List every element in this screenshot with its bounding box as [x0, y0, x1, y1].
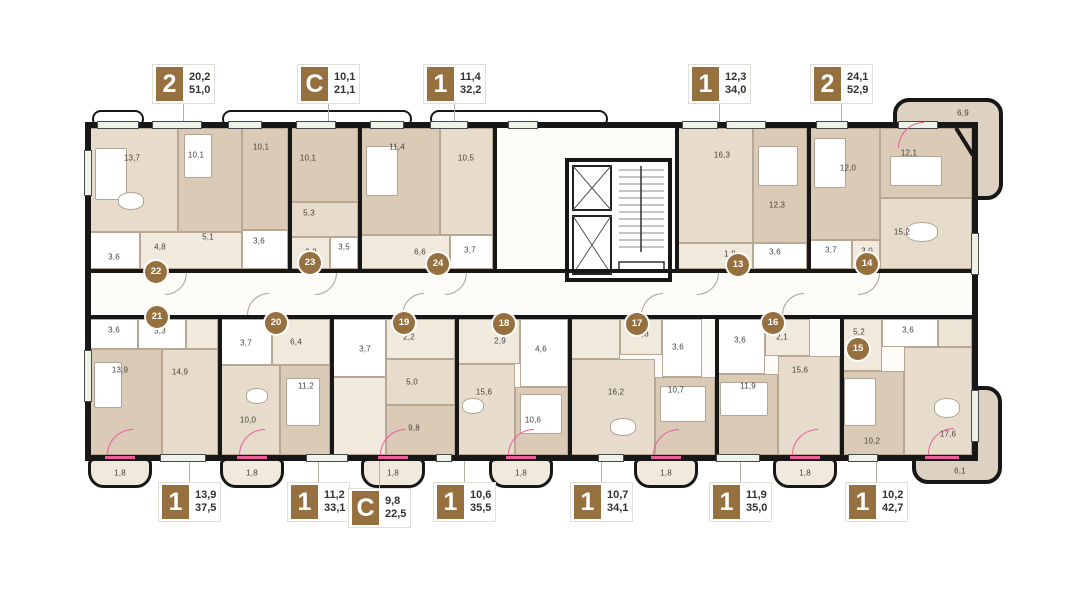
balcony-door-sill — [378, 456, 408, 459]
wall — [715, 319, 719, 455]
total-area: 42,7 — [882, 502, 903, 516]
room — [807, 240, 852, 269]
room — [88, 232, 140, 269]
apartment-areas: 20,251,0 — [189, 71, 210, 98]
room-area-label: 1,8 — [660, 469, 672, 478]
window — [296, 121, 336, 129]
room-area-label: 3,7 — [240, 339, 252, 348]
room-area-label: 15,6 — [792, 366, 808, 375]
unit-number-badge[interactable]: 13 — [727, 254, 749, 276]
apartment-type-badge: 1 — [437, 485, 464, 519]
room-area-label: 3,5 — [338, 243, 350, 252]
window — [716, 454, 760, 462]
total-area: 52,9 — [847, 84, 868, 98]
living-area: 10,7 — [607, 489, 628, 503]
room-area-label: 16,3 — [714, 151, 730, 160]
callout-leader-line — [318, 461, 319, 482]
apartment-type-badge: С — [352, 491, 379, 525]
callout-leader-line — [876, 461, 877, 482]
living-area: 10,6 — [470, 489, 491, 503]
living-area: 11,9 — [746, 489, 767, 503]
room-area-label: 1,8 — [246, 469, 258, 478]
window — [598, 454, 624, 462]
room-area-label: 2,9 — [494, 337, 506, 346]
apartment-areas: 11,935,0 — [746, 489, 767, 516]
unit-number-badge[interactable]: 16 — [762, 312, 784, 334]
room-area-label: 3,7 — [825, 246, 837, 255]
window — [848, 454, 878, 462]
room — [330, 377, 386, 455]
unit-number-badge[interactable]: 22 — [145, 261, 167, 283]
room-area-label: 10,1 — [300, 154, 316, 163]
window — [84, 350, 92, 402]
balcony-door-sill — [105, 456, 135, 459]
apartment-areas: 10,635,5 — [470, 489, 491, 516]
apartment-type-badge: 2 — [156, 67, 183, 101]
living-area: 11,4 — [460, 71, 481, 85]
balcony-door-sill — [925, 456, 959, 459]
room-area-label: 15,6 — [476, 388, 492, 397]
room-area-label: 3,6 — [672, 343, 684, 352]
apartment-type-badge: 1 — [692, 67, 719, 101]
total-area: 35,5 — [470, 502, 491, 516]
living-area: 11,2 — [324, 489, 345, 503]
apartment-areas: 11,432,2 — [460, 71, 481, 98]
wall — [675, 128, 679, 269]
apartment-callout[interactable]: 111,935,0 — [709, 482, 772, 522]
room-area-label: 15,2 — [894, 228, 910, 237]
room — [675, 128, 753, 243]
room — [186, 319, 218, 349]
room-area-label: 10,0 — [240, 416, 256, 425]
bed-furniture — [95, 148, 127, 200]
window — [816, 121, 848, 129]
callout-leader-line — [464, 461, 465, 482]
apartment-areas: 10,121,1 — [334, 71, 355, 98]
total-area: 35,0 — [746, 502, 767, 516]
room-area-label: 3,6 — [769, 248, 781, 257]
total-area: 34,0 — [725, 84, 746, 98]
wall — [807, 128, 811, 269]
bed-furniture — [890, 156, 942, 186]
floor-plan: 13,710,110,13,63,64,85,110,15,32,23,511,… — [0, 0, 1085, 600]
room-area-label: 6,9 — [957, 109, 969, 118]
window — [726, 121, 766, 129]
apartment-callout[interactable]: 220,251,0 — [152, 64, 215, 104]
room-area-label: 3,6 — [108, 326, 120, 335]
apartment-callout[interactable]: 111,432,2 — [423, 64, 486, 104]
room — [568, 359, 655, 455]
window — [152, 121, 202, 129]
bed-furniture — [366, 146, 398, 196]
room-area-label: 10,5 — [458, 154, 474, 163]
room-area-label: 14,9 — [172, 368, 188, 377]
apartment-type-badge: 1 — [162, 485, 189, 519]
window — [436, 454, 452, 462]
room — [288, 202, 358, 237]
bed-furniture — [520, 394, 562, 434]
window — [370, 121, 404, 129]
living-area: 13,9 — [195, 489, 216, 503]
apartment-areas: 9,822,5 — [385, 495, 406, 522]
apartment-areas: 12,334,0 — [725, 71, 746, 98]
callout-leader-line — [189, 461, 190, 482]
living-area: 10,1 — [334, 71, 355, 85]
wall — [455, 319, 459, 455]
apartment-callout[interactable]: 224,152,9 — [810, 64, 873, 104]
room-area-label: 1,8 — [387, 469, 399, 478]
unit-number-badge[interactable]: 15 — [847, 338, 869, 360]
apartment-areas: 13,937,5 — [195, 489, 216, 516]
unit-number-badge[interactable]: 18 — [493, 313, 515, 335]
apartment-type-badge: 2 — [814, 67, 841, 101]
table-furniture — [906, 222, 938, 242]
wall — [568, 319, 572, 455]
room-area-label: 10,7 — [668, 386, 684, 395]
unit-number-badge[interactable]: 24 — [427, 253, 449, 275]
balcony-door-sill — [651, 456, 681, 459]
total-area: 51,0 — [189, 84, 210, 98]
window — [97, 121, 139, 129]
room-area-label: 3,6 — [734, 336, 746, 345]
room — [440, 128, 493, 235]
apartment-type-badge: 1 — [574, 485, 601, 519]
room-area-label: 3,6 — [108, 253, 120, 262]
room — [715, 319, 765, 374]
window — [971, 390, 979, 442]
room — [162, 349, 218, 455]
room-area-label: 11,2 — [298, 382, 314, 391]
apartment-type-badge: 1 — [713, 485, 740, 519]
room-area-label: 3,7 — [359, 345, 371, 354]
stair-elevator-core — [565, 158, 672, 282]
window — [228, 121, 262, 129]
wall — [288, 128, 292, 269]
living-area: 9,8 — [385, 495, 406, 509]
table-furniture — [934, 398, 960, 418]
room-area-label: 13,9 — [112, 366, 128, 375]
wall — [493, 128, 497, 269]
room-area-label: 5,3 — [303, 209, 315, 218]
room-area-label: 11,9 — [740, 382, 756, 391]
room-area-label: 17,6 — [940, 430, 956, 439]
room — [386, 359, 455, 405]
total-area: 34,1 — [607, 502, 628, 516]
apartment-areas: 11,233,1 — [324, 489, 345, 516]
room-area-label: 5,2 — [853, 328, 865, 337]
apartment-areas: 24,152,9 — [847, 71, 868, 98]
unit-number-badge[interactable]: 19 — [393, 312, 415, 334]
room-area-label: 1,8 — [515, 469, 527, 478]
room — [330, 319, 386, 377]
room-area-label: 13,7 — [124, 154, 140, 163]
apartment-callout[interactable]: С9,822,5 — [348, 488, 411, 528]
callout-leader-line — [740, 461, 741, 482]
core-graphics — [569, 162, 668, 278]
apartment-callout[interactable]: С10,121,1 — [297, 64, 360, 104]
unit-number-badge[interactable]: 17 — [626, 313, 648, 335]
window — [306, 454, 348, 462]
room-area-label: 10,2 — [864, 437, 880, 446]
room-area-label: 12,3 — [769, 201, 785, 210]
room-area-label: 4,8 — [154, 243, 166, 252]
callout-leader-line — [601, 461, 602, 482]
room-area-label: 3,6 — [902, 326, 914, 335]
wall — [88, 269, 972, 273]
total-area: 33,1 — [324, 502, 345, 516]
room-area-label: 6,6 — [414, 248, 426, 257]
unit-number-badge[interactable]: 23 — [299, 252, 321, 274]
apartment-callout[interactable]: 110,734,1 — [570, 482, 633, 522]
apartment-callout[interactable]: 110,635,5 — [433, 482, 496, 522]
apartment-callout[interactable]: 112,334,0 — [688, 64, 751, 104]
total-area: 37,5 — [195, 502, 216, 516]
total-area: 22,5 — [385, 508, 406, 522]
window — [84, 150, 92, 196]
room-area-label: 10,6 — [525, 416, 541, 425]
room-area-label: 3,6 — [253, 237, 265, 246]
room-area-label: 2,1 — [776, 333, 788, 342]
callout-leader-line — [379, 461, 380, 488]
wall — [840, 319, 844, 455]
window — [430, 121, 468, 129]
room-area-label: 5,0 — [406, 378, 418, 387]
apartment-areas: 10,242,7 — [882, 489, 903, 516]
apartment-type-badge: 1 — [427, 67, 454, 101]
room-area-label: 16,2 — [608, 388, 624, 397]
balcony-door-sill — [237, 456, 267, 459]
room-area-label: 5,1 — [202, 233, 214, 242]
table-furniture — [246, 388, 268, 404]
room-area-label: 12,1 — [901, 149, 917, 158]
apartment-callout[interactable]: 111,233,1 — [287, 482, 350, 522]
wall — [218, 319, 222, 455]
unit-number-badge[interactable]: 20 — [265, 312, 287, 334]
bed-furniture — [758, 146, 798, 186]
window — [682, 121, 718, 129]
living-area: 24,1 — [847, 71, 868, 85]
apartment-callout[interactable]: 110,242,7 — [845, 482, 908, 522]
living-area: 10,2 — [882, 489, 903, 503]
table-furniture — [462, 398, 484, 414]
window — [508, 121, 538, 129]
bed-furniture — [844, 378, 876, 426]
balcony-door-sill — [506, 456, 536, 459]
apartment-callout[interactable]: 113,937,5 — [158, 482, 221, 522]
unit-number-badge[interactable]: 14 — [856, 253, 878, 275]
room-area-label: 10,1 — [253, 143, 269, 152]
room-area-label: 4,6 — [535, 345, 547, 354]
apartment-type-badge: 1 — [849, 485, 876, 519]
room-area-label: 6,1 — [954, 467, 966, 476]
room-area-label: 12,0 — [840, 164, 856, 173]
apartment-type-badge: 1 — [291, 485, 318, 519]
room-area-label: 11,4 — [389, 143, 405, 152]
balcony-door-sill — [790, 456, 820, 459]
room-area-label: 1,8 — [799, 469, 811, 478]
living-area: 20,2 — [189, 71, 210, 85]
total-area: 32,2 — [460, 84, 481, 98]
window — [971, 233, 979, 275]
apartment-type-badge: С — [301, 67, 328, 101]
table-furniture — [118, 192, 144, 210]
room-area-label: 10,1 — [188, 151, 204, 160]
room-area-label: 1,8 — [114, 469, 126, 478]
living-area: 12,3 — [725, 71, 746, 85]
room-area-label: 9,8 — [408, 424, 420, 433]
table-furniture — [610, 418, 636, 436]
room-area-label: 3,7 — [464, 246, 476, 255]
wall — [358, 128, 362, 269]
unit-number-badge[interactable]: 21 — [146, 306, 168, 328]
room — [288, 128, 358, 202]
room — [568, 319, 620, 359]
room — [938, 319, 972, 347]
window — [160, 454, 206, 462]
room-area-label: 6,4 — [290, 338, 302, 347]
apartment-areas: 10,734,1 — [607, 489, 628, 516]
total-area: 21,1 — [334, 84, 355, 98]
wall — [330, 319, 334, 455]
